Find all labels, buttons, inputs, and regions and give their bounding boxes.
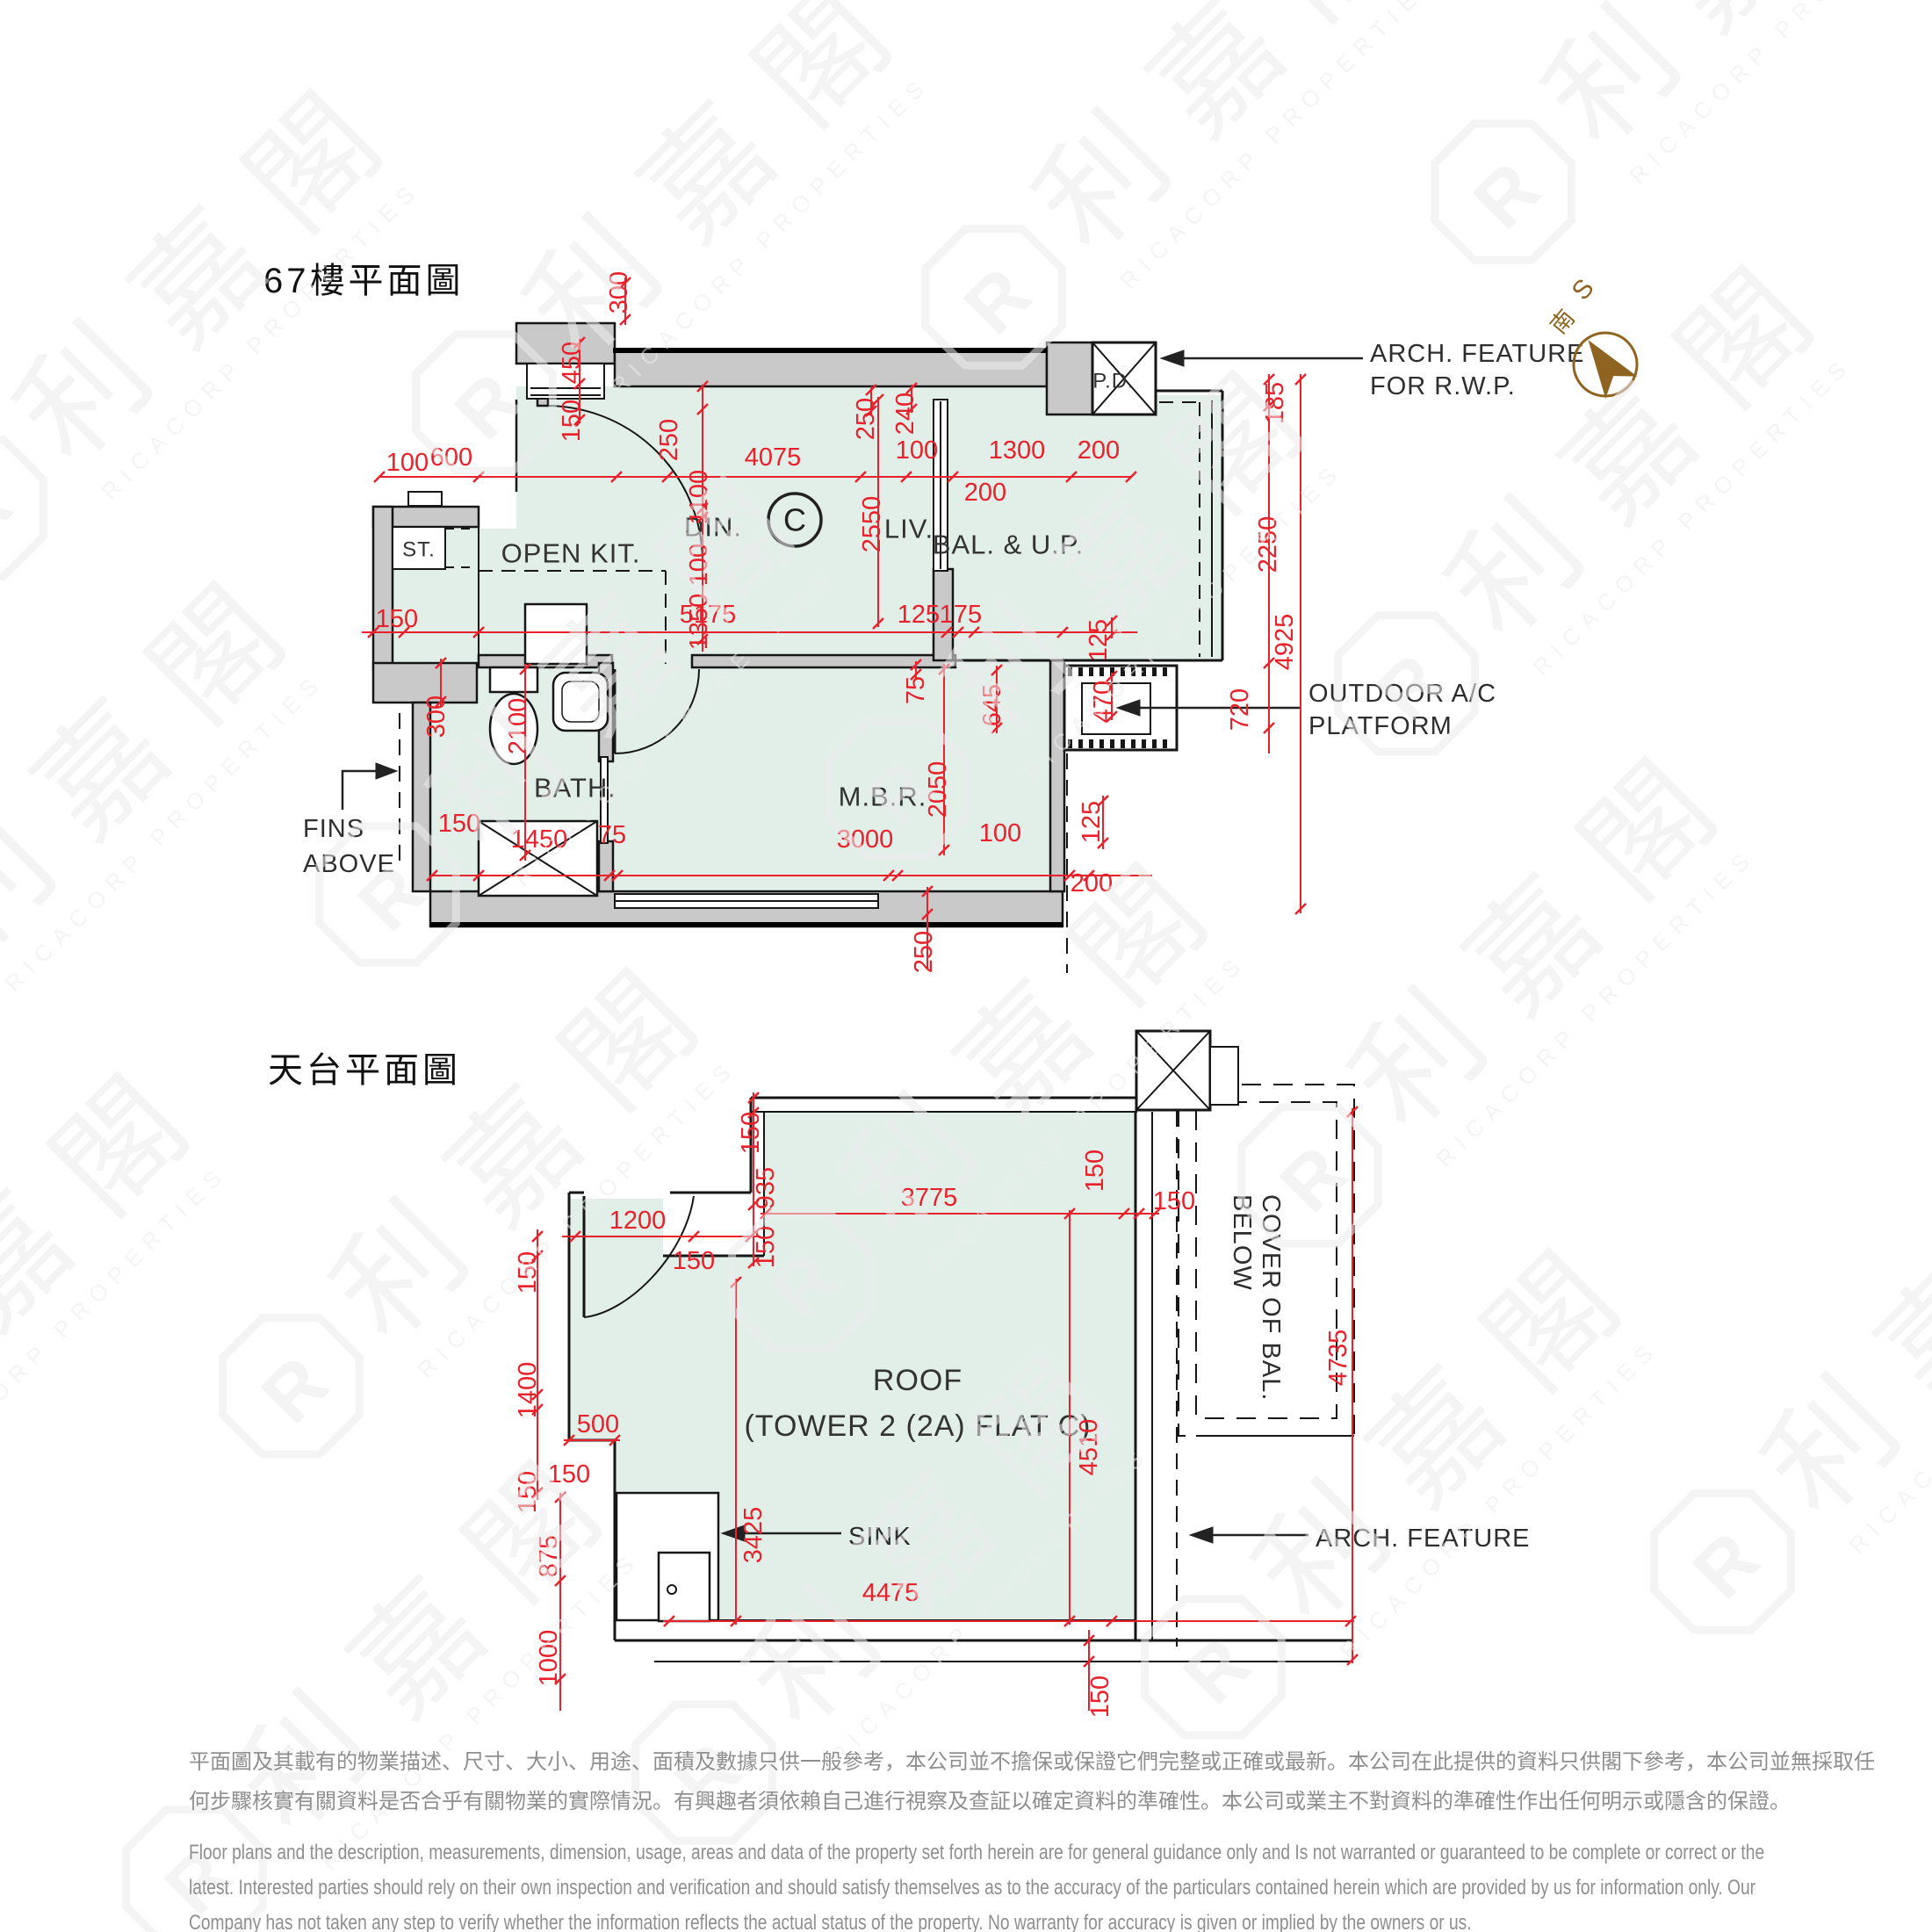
disclaimer-en-line2: latest. Interested parties should rely o… bbox=[189, 1871, 1524, 1906]
roof-plan: 天台平面圖 ROOF(TOWER 2 (2A) FLAT C) 12001501… bbox=[268, 1031, 1530, 1718]
roof-shaft bbox=[1136, 1031, 1238, 1110]
disclaimer-en-line1: Floor plans and the description, measure… bbox=[189, 1835, 1524, 1871]
dim-label: 300 bbox=[422, 696, 451, 738]
dim-label: 185 bbox=[1261, 382, 1289, 424]
unit-label: C bbox=[783, 502, 806, 538]
room-label: BAL. & U.P. bbox=[933, 530, 1084, 560]
dim-label: 4925 bbox=[1271, 614, 1299, 671]
dim-label: 5175 bbox=[680, 601, 737, 629]
dim-label: 2550 bbox=[858, 496, 886, 553]
dim-label: 450 bbox=[558, 342, 586, 384]
dim-label: 175 bbox=[940, 601, 982, 629]
dim-label: 150 bbox=[558, 400, 586, 442]
dim-label: 125 bbox=[1078, 801, 1106, 843]
annotation-label: PLATFORM bbox=[1308, 712, 1453, 740]
dim-label: 150 bbox=[1086, 1676, 1114, 1718]
dim-label: 200 bbox=[964, 479, 1006, 507]
dim-label: 4475 bbox=[862, 1579, 919, 1607]
dim-label: 100 bbox=[896, 436, 938, 465]
annotation-label: ARCH. FEATURE bbox=[1370, 340, 1584, 368]
dim-label: 240 bbox=[891, 393, 919, 435]
disclaimer-zh-line2: 何步驟核實有關資料是否合乎有關物業的實際情況。有興趣者須依賴自己進行視察及查証以… bbox=[189, 1782, 1857, 1821]
annotation-label: OUTDOOR A/C bbox=[1308, 680, 1496, 708]
room-label: M.B.R. bbox=[839, 782, 927, 812]
dim-label: 4735 bbox=[1324, 1330, 1352, 1387]
dim-label: 500 bbox=[577, 1410, 619, 1438]
room-label: BATH. bbox=[534, 773, 616, 804]
annotation-label: FINS bbox=[303, 815, 364, 843]
room-label: P.D. bbox=[1092, 370, 1135, 393]
room-label: LIV. bbox=[884, 514, 934, 544]
compass-s: S bbox=[1567, 274, 1600, 306]
annotation-label: COVER OF BAL. bbox=[1257, 1194, 1285, 1401]
plan-drawing: C 67樓平面圖 DIN.OPEN KIT.LIV.BAL. & U.P.BAT… bbox=[0, 0, 1932, 1932]
annotation-label: BELOW bbox=[1228, 1194, 1256, 1291]
title-67f: 67樓平面圖 bbox=[263, 262, 465, 300]
floor-plan-67: C 67樓平面圖 DIN.OPEN KIT.LIV.BAL. & U.P.BAT… bbox=[263, 262, 1584, 973]
dim-label: 75 bbox=[598, 821, 626, 849]
dim-label: 1200 bbox=[609, 1207, 667, 1235]
dim-label: 2100 bbox=[504, 698, 532, 755]
disclaimer: 平面圖及其載有的物業描述、尺寸、大小、用途、面積及數據只供一般參考，本公司並不擔… bbox=[189, 1742, 1857, 1932]
dim-label: 150 bbox=[1081, 1150, 1109, 1192]
annotation-label: ARCH. FEATURE bbox=[1316, 1525, 1530, 1553]
dim-label: 150 bbox=[1153, 1187, 1195, 1215]
dim-label: 150 bbox=[438, 810, 480, 838]
dim-label: 150 bbox=[548, 1460, 590, 1489]
dim-label: 100 bbox=[386, 449, 429, 477]
dim-label: 100 bbox=[685, 544, 713, 586]
dim-label: 250 bbox=[852, 398, 880, 440]
floorplan-page: C 67樓平面圖 DIN.OPEN KIT.LIV.BAL. & U.P.BAT… bbox=[0, 0, 1932, 1932]
dim-label: 2050 bbox=[924, 761, 952, 818]
dim-label: 645 bbox=[978, 684, 1006, 726]
dim-label: 200 bbox=[1078, 436, 1120, 465]
room-label: ST. bbox=[402, 538, 436, 562]
dim-label: 4510 bbox=[1075, 1419, 1103, 1476]
dim-label: 720 bbox=[1226, 688, 1254, 731]
room-label: (TOWER 2 (2A) FLAT C) bbox=[744, 1409, 1091, 1443]
dim-label: 875 bbox=[535, 1535, 563, 1577]
dim-label: 1450 bbox=[511, 825, 568, 854]
annotation-label: FOR R.W.P. bbox=[1370, 372, 1516, 400]
dim-label: 3775 bbox=[901, 1184, 958, 1212]
dim-label: 250 bbox=[655, 419, 683, 461]
dim-label: 150 bbox=[673, 1247, 715, 1275]
dim-label: 1100 bbox=[685, 470, 713, 524]
dim-label: 150 bbox=[376, 605, 418, 633]
dim-label: 600 bbox=[430, 443, 472, 472]
dim-label: 3000 bbox=[837, 825, 894, 854]
compass-south-hanzi: 南 bbox=[1545, 305, 1580, 339]
dim-label: 1300 bbox=[989, 436, 1046, 465]
roof-sink bbox=[616, 1493, 718, 1621]
dim-label: 1000 bbox=[535, 1630, 563, 1687]
title-roof: 天台平面圖 bbox=[268, 1051, 461, 1090]
room-label: ROOF bbox=[873, 1364, 962, 1397]
annotation-label: ABOVE bbox=[303, 850, 395, 878]
dim-label: 125 bbox=[898, 601, 940, 629]
annotation-label: SINK bbox=[848, 1523, 912, 1551]
dim-label: 250 bbox=[910, 931, 938, 973]
disclaimer-zh-line1: 平面圖及其載有的物業描述、尺寸、大小、用途、面積及數據只供一般參考，本公司並不擔… bbox=[189, 1742, 1857, 1782]
dim-label: 4075 bbox=[745, 443, 802, 472]
dim-label: 150 bbox=[737, 1112, 765, 1154]
room-label: OPEN KIT. bbox=[501, 538, 641, 569]
dim-label: 75 bbox=[902, 676, 930, 704]
disclaimer-en-line3: Company has not taken any step to verify… bbox=[189, 1906, 1524, 1932]
dim-label: 3425 bbox=[739, 1507, 768, 1564]
dim-label: 100 bbox=[979, 819, 1021, 847]
